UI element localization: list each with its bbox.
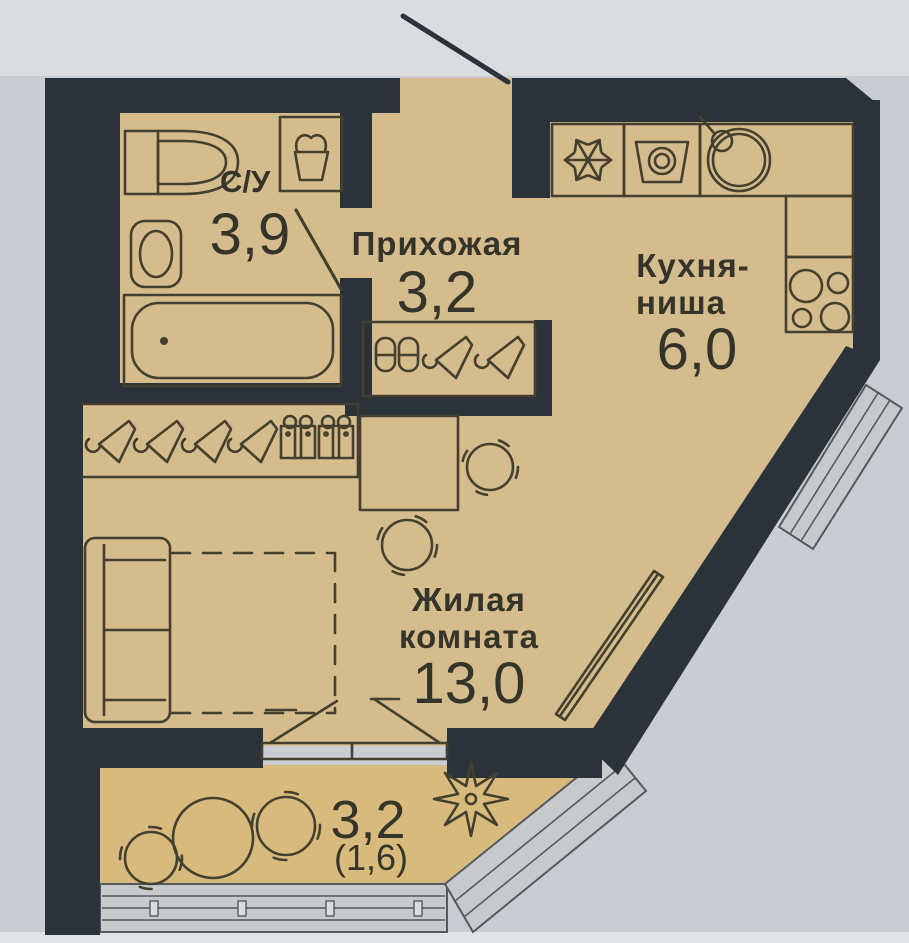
kitchen-label-line1: Кухня- <box>636 247 749 284</box>
background-top-strip <box>0 0 909 76</box>
wall-bathroom-pad <box>83 78 120 403</box>
hallway-label: Прихожая <box>352 225 523 262</box>
bathroom-area: 3,9 <box>210 202 291 267</box>
balcony-glazing-bottom <box>100 884 447 932</box>
wall-balcony-left <box>45 728 100 935</box>
kitchen-area: 6,0 <box>657 317 738 382</box>
floor-entry-threshold <box>400 78 512 118</box>
balcony-area-secondary: (1,6) <box>334 837 408 878</box>
living-room-label-line1: Жилая <box>411 581 526 618</box>
wall-entry-stub <box>512 78 550 198</box>
hallway-area: 3,2 <box>397 260 478 325</box>
bathroom-label: С/У <box>220 164 271 199</box>
living-room-area: 13,0 <box>413 651 526 716</box>
floor-plan-photo: С/У 3,9 Прихожая 3,2 Кухня- ниша 6,0 Жил… <box>0 0 909 943</box>
wall-right <box>853 100 880 360</box>
wall-bathroom-right-upper <box>340 78 372 208</box>
kitchen-label-line2: ниша <box>636 284 726 321</box>
background-bottom-strip <box>0 932 909 943</box>
wall-left <box>45 78 83 768</box>
wall-closet-bottom <box>345 396 552 416</box>
living-room-label-line2: комната <box>399 618 539 655</box>
wall-living-bottom-left <box>83 728 263 768</box>
wall-top-right <box>512 78 880 122</box>
floor-plan-canvas: С/У 3,9 Прихожая 3,2 Кухня- ниша 6,0 Жил… <box>0 0 909 943</box>
